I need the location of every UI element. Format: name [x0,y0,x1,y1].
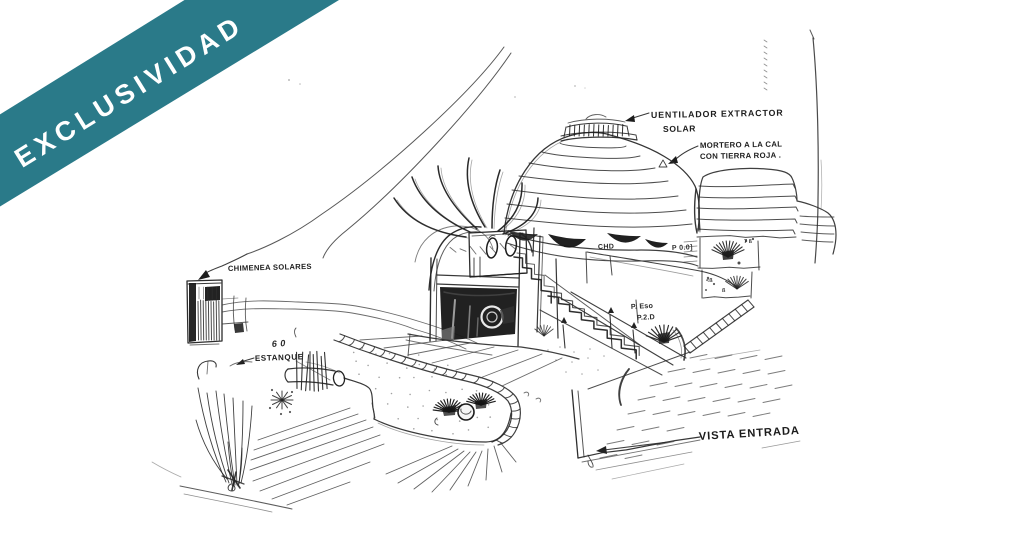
svg-text:MORTERO A LA CAL: MORTERO A LA CAL [700,140,782,150]
svg-text:7 ß: 7 ß [744,239,753,245]
svg-text:ß: ß [722,288,726,294]
svg-text:SOLAR: SOLAR [663,123,696,134]
svg-text:UENTILADOR EXTRACTOR: UENTILADOR EXTRACTOR [651,108,784,120]
svg-text:P.2.D: P.2.D [637,312,656,322]
svg-text:CHIMENEA SOLARES: CHIMENEA SOLARES [228,262,312,273]
svg-text:CON TIERRA ROJA .: CON TIERRA ROJA . [700,151,781,161]
svg-text:P. Eso: P. Eso [631,301,654,311]
svg-text:VISTA ENTRADA: VISTA ENTRADA [698,425,800,443]
svg-text:P 0.0]: P 0.0] [672,244,693,252]
svg-text:6 0: 6 0 [271,338,286,349]
svg-text:<ß: <ß [706,278,713,284]
